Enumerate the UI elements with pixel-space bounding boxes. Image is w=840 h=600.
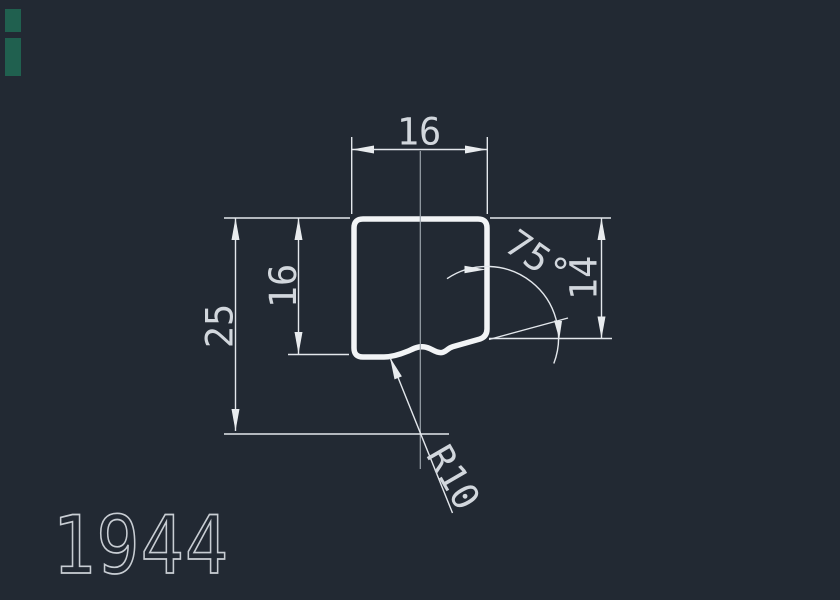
- dim-text-overall-height: 25: [199, 304, 242, 349]
- part-number-label: 1944: [52, 506, 229, 586]
- dim-text-radius: R10: [418, 438, 489, 517]
- cad-drawing-canvas: 16 25 16 14 75° R10 1944: [0, 0, 840, 600]
- arrow-top-width-left: [352, 146, 374, 154]
- dimension-lines: [224, 137, 612, 513]
- arrow-top-width-right: [465, 146, 487, 154]
- dim-text-top-width: 16: [397, 111, 442, 154]
- arrow-inner-bottom: [295, 332, 303, 354]
- corner-color-mark-top: [5, 9, 21, 32]
- arrow-right-top: [598, 218, 606, 240]
- arrow-right-bottom: [598, 317, 606, 339]
- dim-text-inner-height: 16: [262, 264, 305, 309]
- arrow-inner-top: [295, 218, 303, 240]
- arrow-overall-bottom: [232, 409, 240, 431]
- corner-color-mark-bottom: [5, 38, 21, 76]
- arrow-overall-top: [232, 218, 240, 240]
- arrow-radius-leader: [390, 358, 402, 380]
